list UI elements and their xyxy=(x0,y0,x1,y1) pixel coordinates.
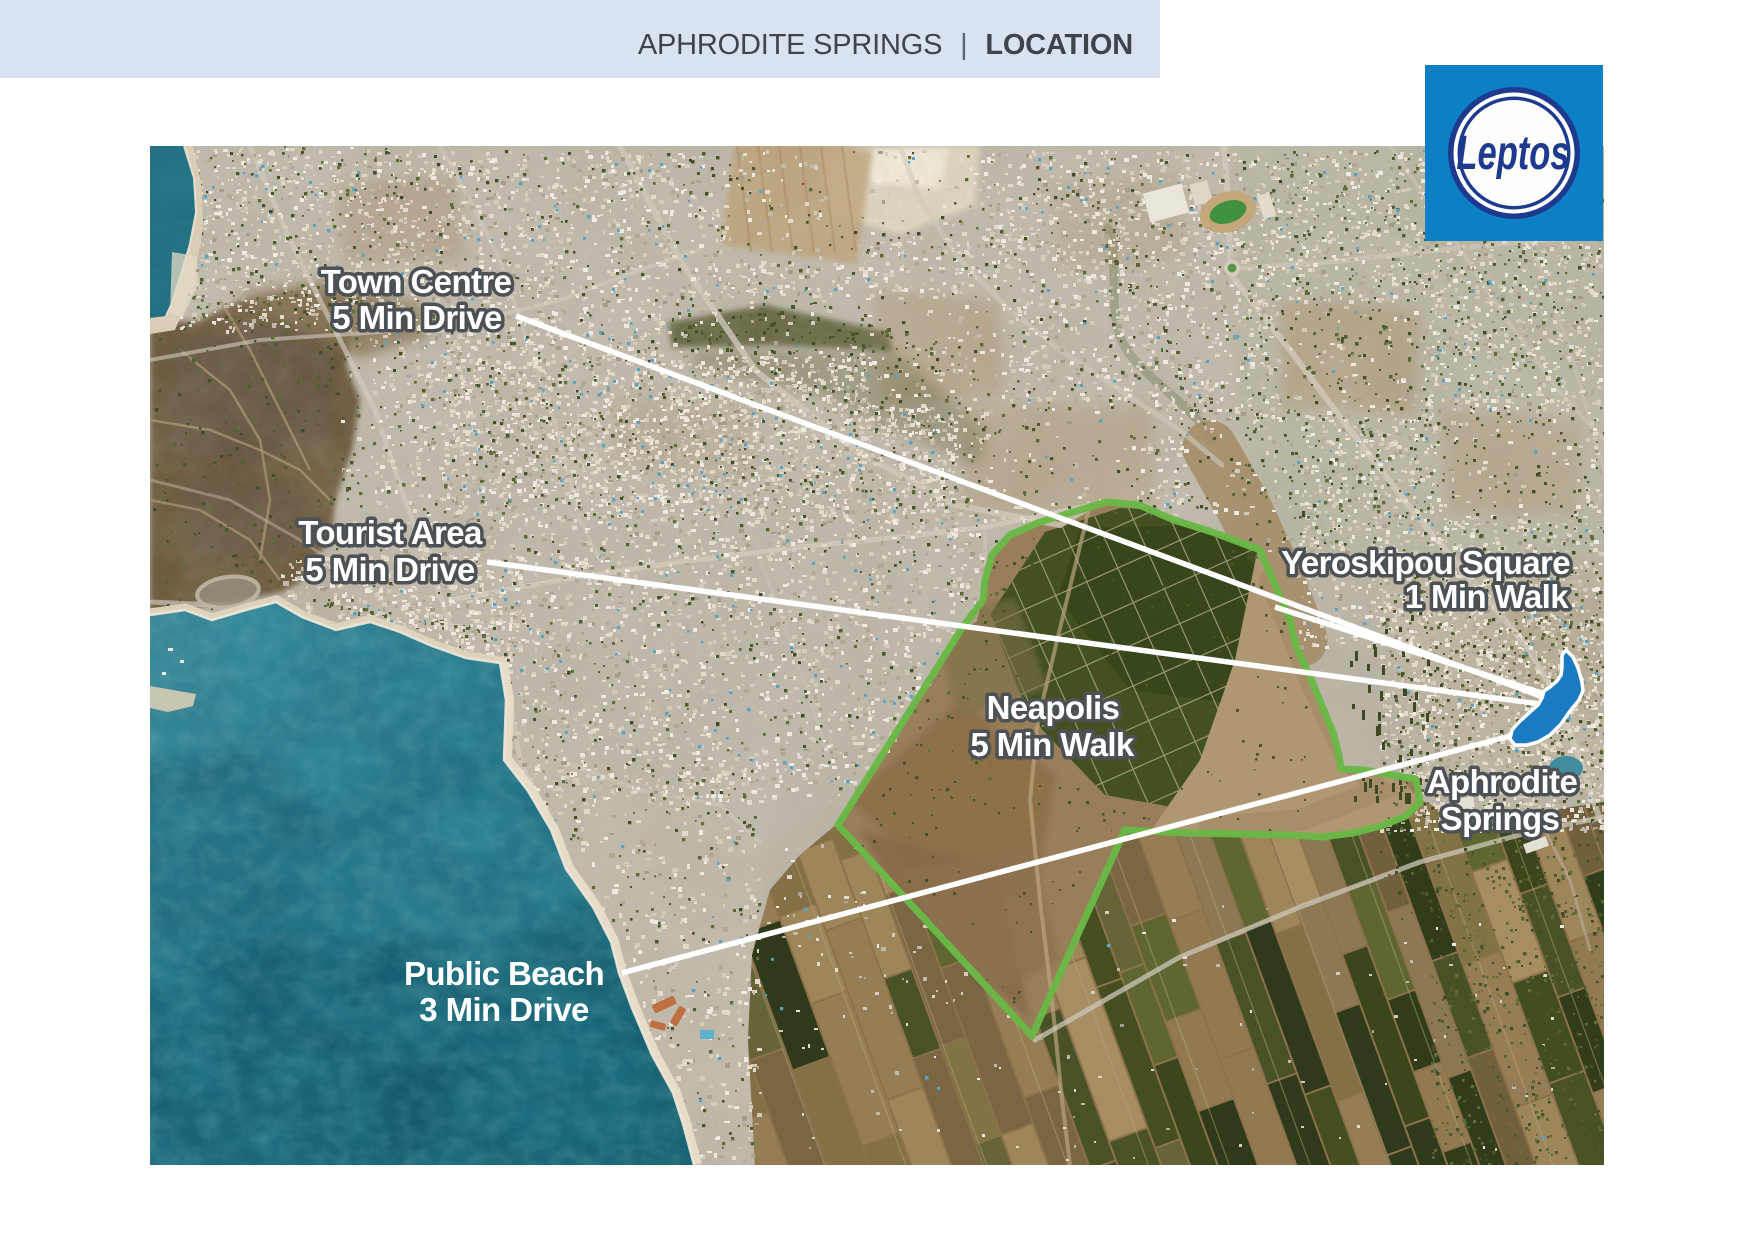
svg-text:5 Min Drive: 5 Min Drive xyxy=(305,551,475,588)
svg-text:5 Min Drive: 5 Min Drive xyxy=(332,299,502,336)
svg-text:Public Beach: Public Beach xyxy=(404,955,604,992)
svg-text:3 Min Drive: 3 Min Drive xyxy=(419,991,589,1028)
svg-text:Springs: Springs xyxy=(1441,800,1560,837)
svg-text:5 Min Walk: 5 Min Walk xyxy=(970,726,1135,763)
svg-text:Yeroskipou Square: Yeroskipou Square xyxy=(1281,544,1570,581)
svg-text:1 Min Walk: 1 Min Walk xyxy=(1405,578,1570,615)
svg-text:Leptos: Leptos xyxy=(1456,125,1569,179)
svg-text:Town Centre: Town Centre xyxy=(321,263,512,300)
svg-text:Neapolis: Neapolis xyxy=(987,689,1120,726)
svg-text:Aphrodite: Aphrodite xyxy=(1427,763,1578,800)
svg-text:Tourist Area: Tourist Area xyxy=(298,514,483,551)
